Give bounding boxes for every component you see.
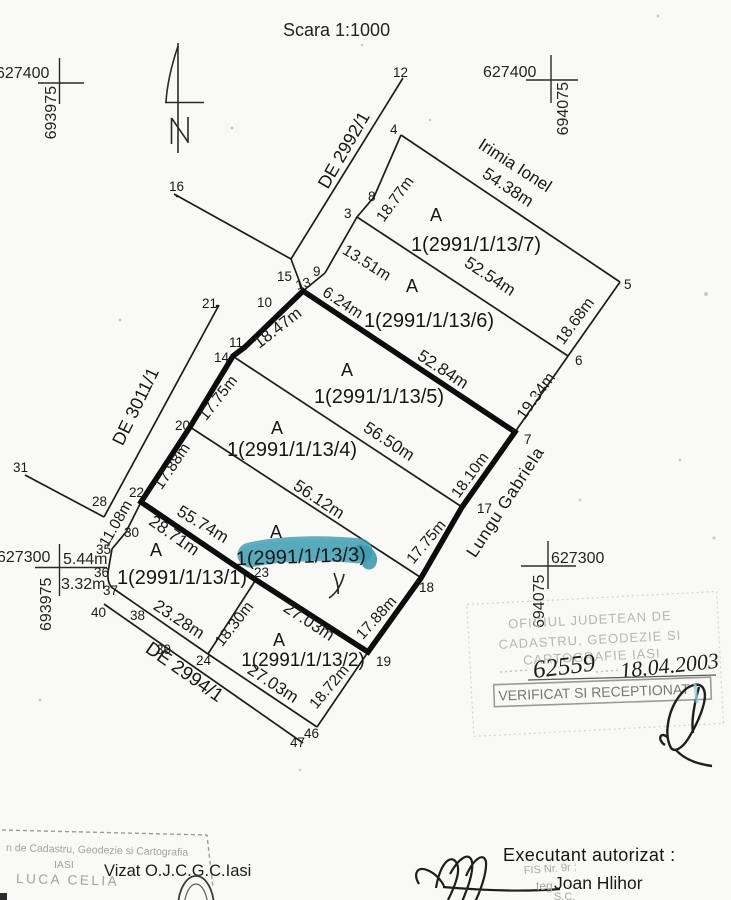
svg-text:627300: 627300: [0, 549, 50, 566]
svg-text:A: A: [150, 540, 162, 560]
svg-text:1(2991/1/13/1): 1(2991/1/13/1): [117, 567, 247, 589]
svg-text:1(2991/1/13/5): 1(2991/1/13/5): [314, 386, 444, 408]
svg-text:6: 6: [575, 353, 583, 368]
svg-text:24: 24: [196, 653, 212, 668]
svg-text:16: 16: [169, 179, 184, 194]
svg-text:21: 21: [202, 296, 217, 311]
svg-text:Vizat O.J.C.G.C.Iasi: Vizat O.J.C.G.C.Iasi: [104, 862, 251, 880]
svg-text:A: A: [271, 418, 283, 438]
svg-text:693975: 693975: [43, 86, 60, 139]
svg-text:IASI: IASI: [54, 859, 74, 871]
svg-text:23: 23: [254, 565, 269, 580]
svg-text:8: 8: [368, 189, 376, 204]
svg-text:A: A: [430, 205, 442, 225]
svg-text:1(2991/1/13/6): 1(2991/1/13/6): [364, 310, 494, 332]
svg-text:47: 47: [290, 735, 305, 750]
svg-text:694075: 694075: [555, 82, 572, 135]
svg-text:1(2991/1/13/4): 1(2991/1/13/4): [227, 439, 357, 461]
svg-text:A: A: [341, 360, 353, 380]
svg-text:12: 12: [393, 65, 408, 80]
svg-text:22: 22: [129, 485, 144, 500]
svg-text:627400: 627400: [483, 64, 536, 81]
svg-text:36: 36: [94, 565, 109, 580]
svg-text:19: 19: [376, 654, 391, 669]
svg-text:9: 9: [313, 264, 321, 279]
svg-text:37: 37: [103, 583, 118, 598]
svg-text:3: 3: [344, 206, 352, 221]
svg-text:46: 46: [304, 726, 319, 741]
svg-text:1(2991/1/13/7): 1(2991/1/13/7): [411, 234, 541, 256]
svg-text:18: 18: [419, 580, 434, 595]
svg-text:11: 11: [229, 335, 243, 350]
svg-text:A: A: [406, 276, 418, 296]
svg-text:Executant autorizat :: Executant autorizat :: [503, 845, 676, 865]
svg-text:35: 35: [96, 542, 111, 557]
svg-text:10: 10: [257, 295, 272, 310]
svg-text:14: 14: [214, 350, 230, 365]
svg-text:A: A: [273, 630, 285, 650]
svg-text:20: 20: [175, 418, 190, 433]
svg-text:693975: 693975: [38, 578, 55, 631]
svg-text:5: 5: [624, 277, 632, 292]
svg-text:15: 15: [277, 269, 292, 284]
svg-text:627400: 627400: [0, 65, 49, 82]
svg-text:28: 28: [92, 494, 107, 509]
svg-text:Joan Hlihor: Joan Hlihor: [554, 873, 643, 893]
svg-text:teg: teg: [536, 879, 553, 893]
svg-text:31: 31: [13, 460, 28, 475]
svg-text:A: A: [270, 522, 282, 542]
svg-text:40: 40: [91, 605, 106, 620]
svg-text:39: 39: [156, 642, 171, 657]
svg-text:627300: 627300: [551, 550, 604, 567]
svg-text:38: 38: [130, 608, 145, 623]
svg-text:17: 17: [477, 501, 492, 516]
svg-text:7: 7: [524, 432, 532, 447]
svg-text:30: 30: [124, 525, 139, 540]
svg-text:Scara 1:1000: Scara 1:1000: [283, 20, 390, 40]
svg-text:4: 4: [390, 122, 398, 137]
